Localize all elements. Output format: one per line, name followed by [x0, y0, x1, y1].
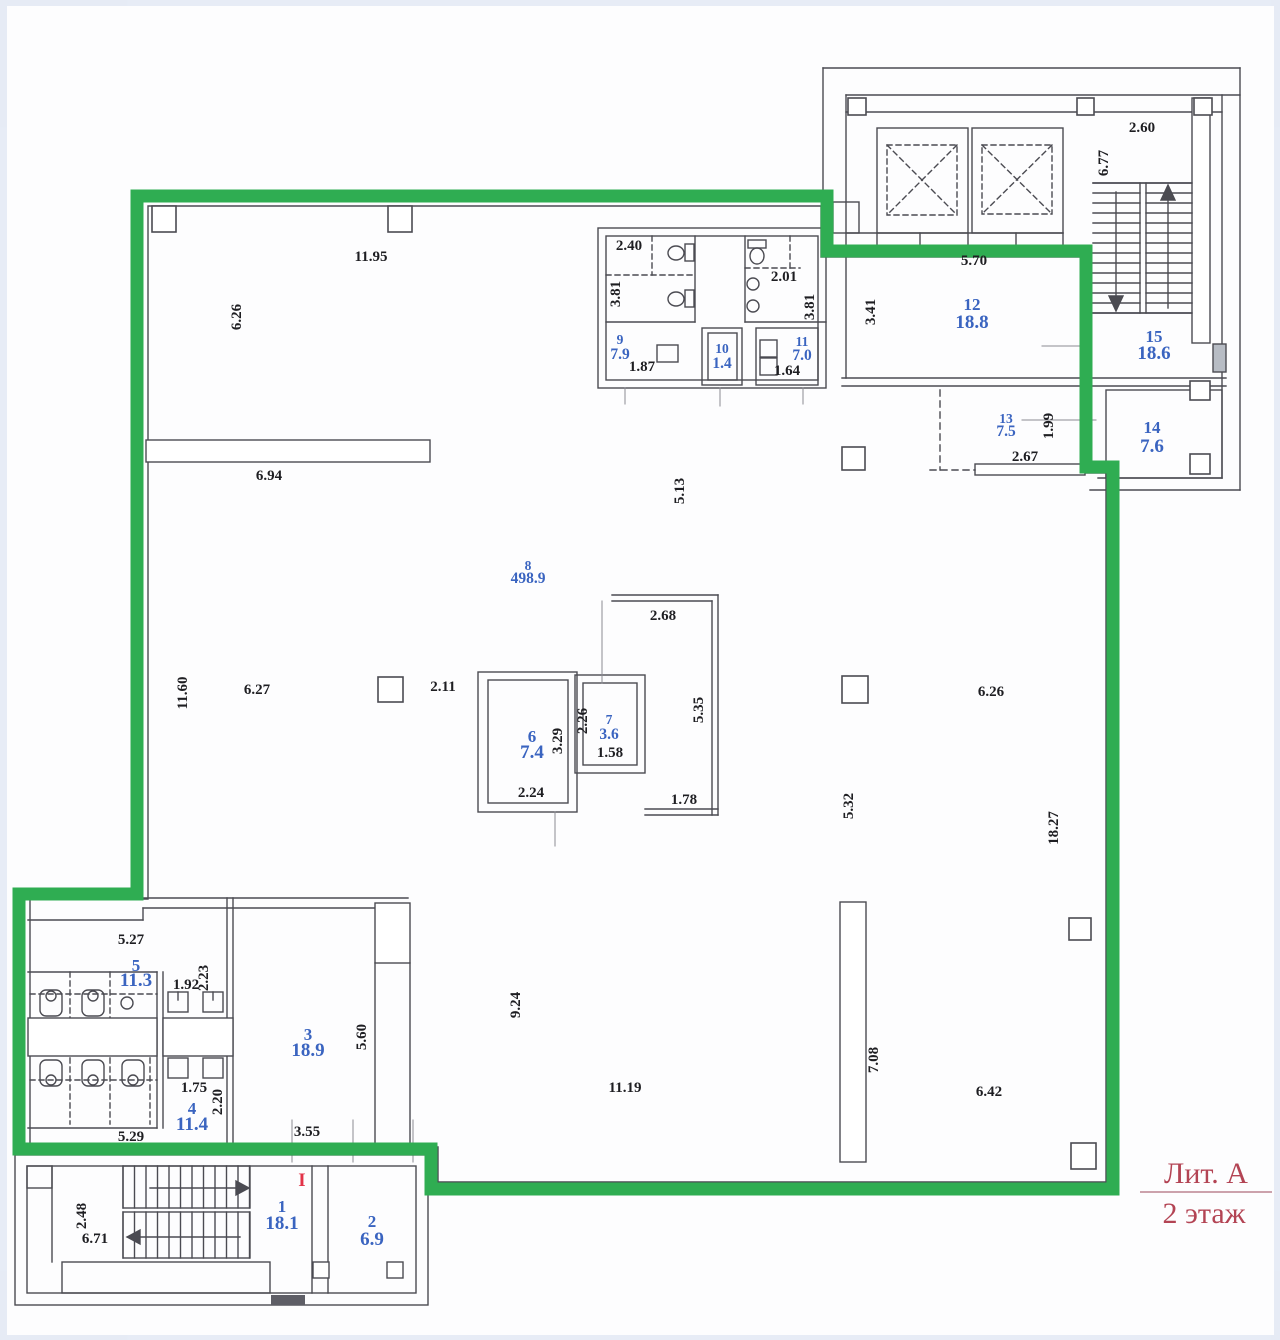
- sink-icon: [657, 345, 678, 362]
- column: [848, 98, 866, 115]
- room-area-label: 18.1: [265, 1213, 298, 1234]
- dimension-label: 5.70: [961, 253, 987, 269]
- dimension-label: 11.19: [609, 1080, 642, 1096]
- room-area-label: 6.9: [360, 1229, 384, 1250]
- dimension-label: 11.60: [175, 677, 191, 710]
- column: [378, 677, 403, 702]
- column: [388, 206, 412, 232]
- dimension-label: 6.27: [244, 682, 271, 698]
- sink-icon: [168, 1058, 188, 1078]
- dimension-label: 6.42: [976, 1084, 1002, 1100]
- room-area-label: 3.6: [599, 726, 619, 743]
- toilet-icon: [668, 244, 694, 261]
- dimension-label: 2.68: [650, 608, 676, 624]
- dimension-label: 2.23: [196, 965, 212, 991]
- floor-plan-page: 2.606.775.703.411.992.672.403.812.013.81…: [0, 0, 1280, 1340]
- dimension-label: 7.08: [866, 1047, 882, 1073]
- dimension-label: 5.13: [672, 478, 688, 504]
- room-area-label: 498.9: [511, 570, 546, 587]
- dimension-label: 1.99: [1041, 413, 1057, 439]
- dimension-label: 6.94: [256, 468, 283, 484]
- sink-icon: [203, 1058, 223, 1078]
- room-area-label: 18.8: [955, 312, 988, 333]
- arrow-left-icon: [127, 1230, 140, 1244]
- dimension-label: 5.29: [118, 1129, 144, 1145]
- dimension-label: 9.24: [508, 991, 524, 1018]
- room-area-label: 7.5: [996, 423, 1016, 440]
- floor-plan-drawing: 2.606.775.703.411.992.672.403.812.013.81…: [0, 0, 1280, 1340]
- dimension-label: 2.60: [1129, 120, 1155, 136]
- room-number-label: 7: [606, 712, 613, 727]
- core-block: [823, 68, 1240, 490]
- toilet-icon: [668, 290, 694, 307]
- column: [1190, 454, 1210, 474]
- elevator-shaft-icon: [972, 128, 1063, 233]
- dimension-label: 5.60: [354, 1024, 370, 1050]
- dimension-label: 2.67: [1012, 449, 1039, 465]
- column: [152, 206, 176, 232]
- room-area-label: 7.9: [610, 346, 630, 363]
- dimension-label: 2.24: [518, 785, 545, 801]
- dimension-label: 1.78: [671, 792, 697, 808]
- sink-icon: [760, 340, 777, 357]
- column: [1194, 98, 1212, 115]
- column: [1077, 98, 1094, 115]
- arrow-right-icon: [236, 1181, 249, 1195]
- dimension-label: 6.26: [978, 684, 1005, 700]
- room-area-label: 7.4: [520, 742, 544, 763]
- dimension-label: 6.26: [229, 303, 245, 330]
- stair-steps: [1093, 183, 1192, 313]
- room-area-label: 11.4: [176, 1114, 209, 1135]
- dimension-label: 1.87: [629, 359, 656, 375]
- dimension-label: 3.55: [294, 1124, 320, 1140]
- toilet-icon: [748, 240, 766, 264]
- dimension-label: 3.41: [863, 299, 879, 325]
- dimension-label: 1.58: [597, 745, 623, 761]
- room-area-label: 7.0: [792, 347, 812, 364]
- room-area-label: 18.6: [1137, 343, 1170, 364]
- room-area-label: 11.3: [120, 970, 152, 991]
- dimension-label: 3.81: [608, 281, 624, 307]
- wall-segment-6.94: [146, 440, 430, 462]
- dimension-label: 2.11: [430, 679, 455, 695]
- column: [1069, 918, 1091, 940]
- dimension-label: 5.27: [118, 932, 145, 948]
- door-threshold: [271, 1295, 305, 1305]
- dimension-label: 2.40: [616, 238, 642, 254]
- dimension-label: 5.32: [841, 793, 857, 819]
- bathroom-block: [598, 228, 826, 406]
- litera-label: Лит. А: [1164, 1157, 1248, 1190]
- drain-icon: [121, 997, 133, 1009]
- sink-icon: [747, 278, 759, 290]
- dimension-label: 2.20: [210, 1089, 226, 1115]
- room-number-label: 14: [1144, 418, 1162, 437]
- toilet-icon: [122, 1060, 144, 1086]
- dimension-label: 6.71: [82, 1231, 108, 1247]
- columns: [152, 98, 1212, 1169]
- wall-segment-7.08: [840, 902, 866, 1162]
- dimension-label: 2.26: [575, 707, 591, 734]
- room-area-label: 1.4: [712, 355, 732, 372]
- toilet-icon: [40, 1060, 62, 1086]
- room-number-label: 10: [715, 341, 729, 356]
- dimension-label: 11.95: [355, 249, 388, 265]
- elevator-shaft-icon: [877, 128, 968, 233]
- dimension-label: 2.48: [74, 1203, 90, 1229]
- dimension-label: 1.64: [774, 363, 801, 379]
- room-area-label: 18.9: [291, 1040, 324, 1061]
- room3-wall: [375, 903, 410, 1148]
- column: [1190, 381, 1210, 400]
- sink-icon: [747, 300, 759, 312]
- room-number-label: 9: [617, 332, 624, 347]
- dimension-label: 3.29: [550, 728, 566, 754]
- title-block: Лит. А 2 этаж: [1140, 1157, 1272, 1230]
- column: [1071, 1143, 1096, 1169]
- dimension-label: 1.75: [181, 1080, 207, 1096]
- dimension-label: 3.81: [802, 294, 818, 320]
- dimension-label: 6.77: [1096, 149, 1112, 176]
- column: [842, 447, 865, 470]
- dimension-label: 2.01: [771, 269, 797, 285]
- column: [842, 676, 868, 703]
- floor-label: 2 этаж: [1163, 1197, 1246, 1230]
- room-area-label: 7.6: [1140, 436, 1164, 457]
- dimension-label: 5.35: [691, 697, 707, 723]
- dimension-label: 18.27: [1046, 811, 1062, 845]
- toilet-icon: [82, 1060, 104, 1086]
- room6-7-block: [478, 595, 718, 846]
- entrance-mark: I: [298, 1170, 305, 1191]
